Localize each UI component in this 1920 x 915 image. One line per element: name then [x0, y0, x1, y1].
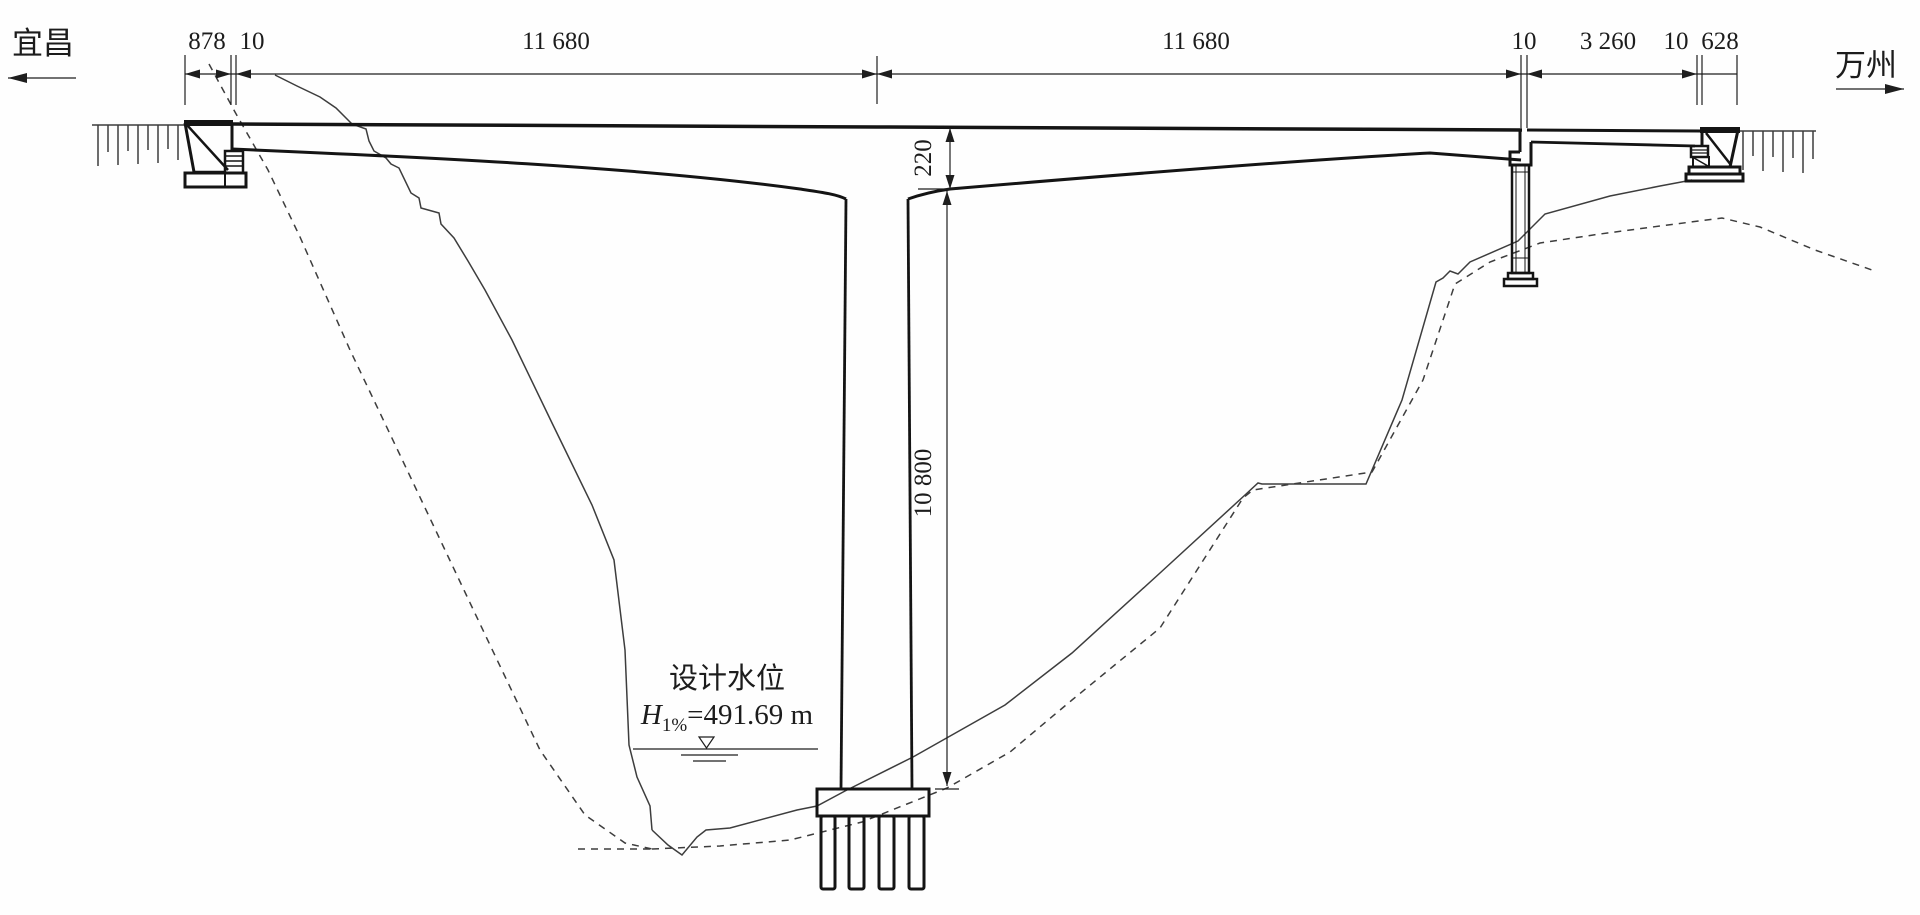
girder-soffit-right	[908, 153, 1521, 199]
left-arrow-icon	[8, 73, 27, 83]
right-pier-base-lower	[1504, 279, 1537, 286]
bridge-elevation-drawing: 878 10 11 680 11 680 10 3 260 10 628 220…	[0, 0, 1920, 915]
dim-girder-depth: 220	[910, 139, 937, 177]
direction-right-label: 万州	[1835, 48, 1897, 83]
right-pier-column	[1512, 165, 1529, 273]
bridge-structure	[184, 123, 1743, 889]
approach-beam-bottom	[1531, 142, 1695, 146]
direction-wanzhou: 万州	[1835, 48, 1904, 94]
right-ground-hatching	[1738, 131, 1816, 173]
approach-beam-top	[1527, 130, 1701, 131]
pile	[821, 816, 835, 889]
dim-left-overhang: 878	[188, 28, 226, 55]
dim-pier-height: 10 800	[910, 449, 937, 518]
direction-left-label: 宜昌	[12, 26, 74, 61]
water-level-triangle-icon	[699, 737, 714, 748]
left-slope-ground-line	[275, 75, 652, 830]
right-abutment-footing-lower	[1686, 174, 1743, 181]
right-arrow-icon	[1885, 84, 1904, 94]
left-abutment-footing	[185, 173, 246, 187]
girder-soffit-left	[232, 149, 846, 199]
dim-left-span: 11 680	[522, 28, 590, 55]
dimension-chain: 878 10 11 680 11 680 10 3 260 10 628	[185, 28, 1739, 128]
piles	[821, 816, 924, 889]
left-abutment	[184, 123, 246, 187]
right-abutment-bearing	[1691, 146, 1708, 157]
water-level-label: 设计水位	[669, 662, 785, 695]
right-slope-dashed-line	[652, 218, 1872, 849]
water-level-value: H1%=491.69 m	[640, 699, 814, 736]
right-abutment	[1686, 130, 1743, 181]
left-slope-dashed-line	[209, 64, 652, 849]
terrain	[92, 64, 1872, 855]
dim-approach-span: 3 260	[1580, 28, 1636, 55]
pile	[849, 816, 864, 889]
right-pier	[1504, 165, 1537, 286]
center-pier-left-edge	[841, 199, 846, 789]
pile	[879, 816, 894, 889]
design-water-level: 设计水位 H1%=491.69 m	[633, 662, 818, 761]
dim-right-overhang: 628	[1701, 28, 1739, 55]
direction-yichang: 宜昌	[8, 26, 76, 83]
girder-depth-dimension: 220	[910, 128, 958, 189]
dim-right-span: 11 680	[1162, 28, 1230, 55]
pier-height-dimension: 10 800	[910, 191, 959, 789]
dim-right-joint-gap: 10	[1512, 28, 1537, 55]
dim-abutment-gap: 10	[1664, 28, 1689, 55]
deck-top-line	[232, 124, 1522, 130]
dim-left-joint-gap: 10	[240, 28, 265, 55]
pile	[909, 816, 924, 889]
left-ground-hatching	[92, 125, 186, 166]
